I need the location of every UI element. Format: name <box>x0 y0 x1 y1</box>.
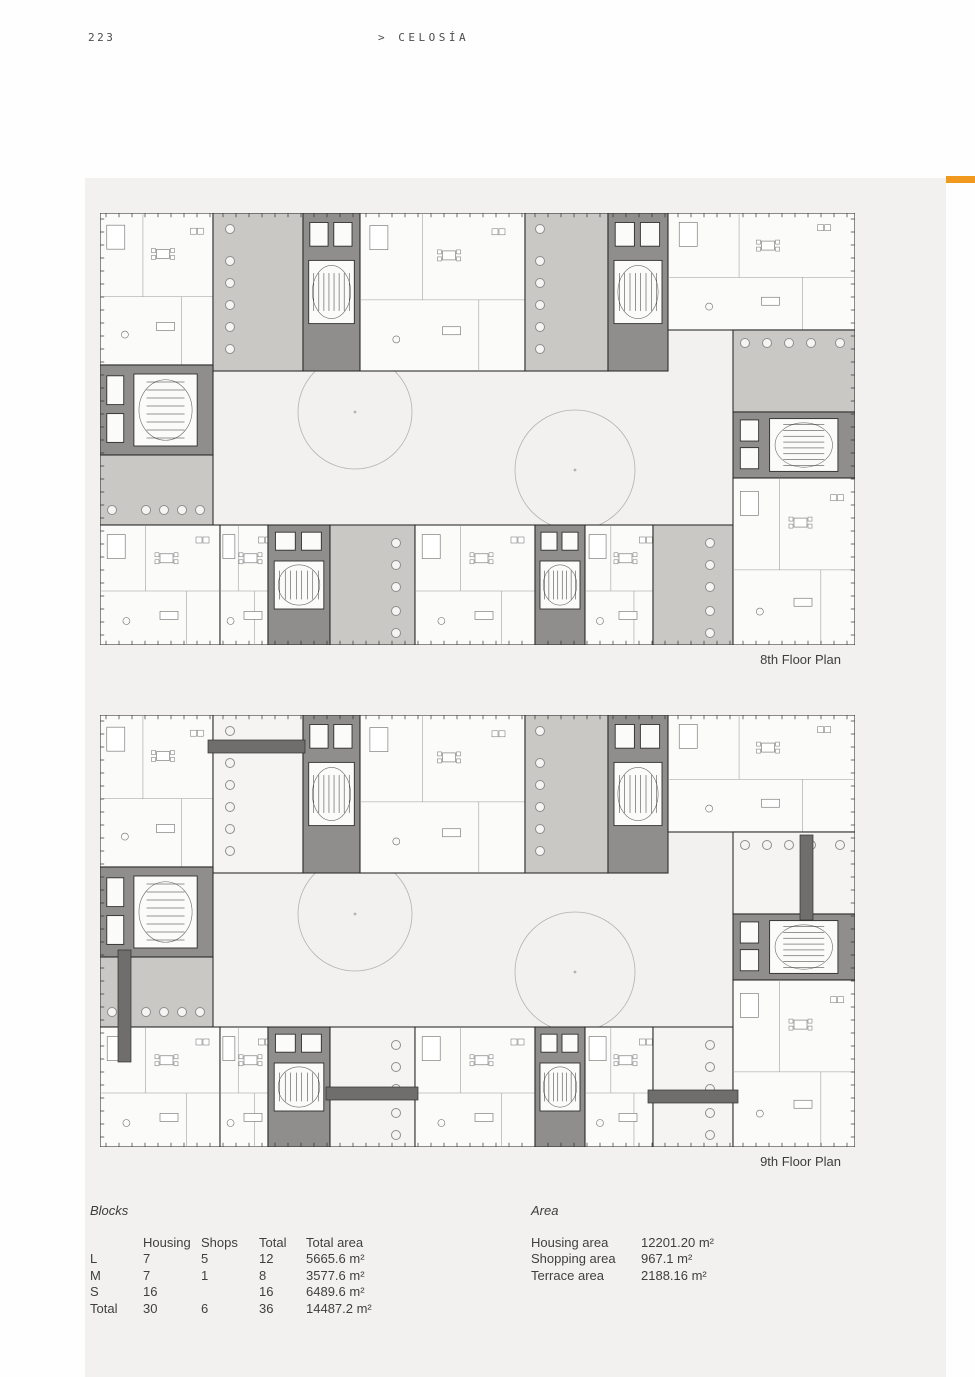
area-table: Area Housing area12201.20 m²Shopping are… <box>531 1203 714 1284</box>
blocks-table-cell: 8 <box>259 1268 306 1284</box>
blocks-table-header-cell: Shops <box>201 1235 259 1251</box>
area-table-title: Area <box>531 1203 714 1218</box>
page-number: 223 <box>88 31 115 44</box>
blocks-table-cell: 30 <box>143 1301 201 1317</box>
blocks-table-cell: L <box>90 1251 143 1267</box>
blocks-table-header-cell <box>90 1235 143 1251</box>
blocks-table-cell: 16 <box>259 1284 306 1300</box>
blocks-table-cell <box>201 1284 259 1300</box>
blocks-table-cell: 16 <box>143 1284 201 1300</box>
blocks-table-cell: 7 <box>143 1251 201 1267</box>
blocks-table-header-cell: Total area <box>306 1235 372 1251</box>
floor-plan-8-label: 8th Floor Plan <box>541 652 841 667</box>
floor-plan-9-label: 9th Floor Plan <box>541 1154 841 1169</box>
area-table-label: Terrace area <box>531 1268 641 1284</box>
blocks-table: Blocks HousingShopsTotalTotal areaL75125… <box>90 1203 372 1317</box>
area-table-label: Housing area <box>531 1235 641 1251</box>
accent-bar <box>946 176 975 183</box>
area-table-value: 12201.20 m² <box>641 1235 714 1251</box>
blocks-table-header-cell: Total <box>259 1235 306 1251</box>
blocks-table-cell: 6489.6 m² <box>306 1284 372 1300</box>
blocks-table-cell: M <box>90 1268 143 1284</box>
chapter-title: > CELOSÍA <box>378 31 469 44</box>
blocks-table-grid: HousingShopsTotalTotal areaL75125665.6 m… <box>90 1235 372 1317</box>
blocks-table-header-cell: Housing <box>143 1235 201 1251</box>
blocks-table-cell: S <box>90 1284 143 1300</box>
blocks-table-cell: 36 <box>259 1301 306 1317</box>
blocks-table-cell: 7 <box>143 1268 201 1284</box>
blocks-table-cell: 14487.2 m² <box>306 1301 372 1317</box>
area-table-grid: Housing area12201.20 m²Shopping area967.… <box>531 1235 714 1284</box>
blocks-table-cell: 3577.6 m² <box>306 1268 372 1284</box>
blocks-table-cell: 5 <box>201 1251 259 1267</box>
floor-plan-8 <box>100 213 855 645</box>
blocks-table-title: Blocks <box>90 1203 372 1218</box>
blocks-table-cell: 1 <box>201 1268 259 1284</box>
blocks-table-cell: 5665.6 m² <box>306 1251 372 1267</box>
blocks-table-cell: 6 <box>201 1301 259 1317</box>
area-table-label: Shopping area <box>531 1251 641 1267</box>
area-table-value: 967.1 m² <box>641 1251 714 1267</box>
blocks-table-cell: 12 <box>259 1251 306 1267</box>
blocks-table-cell: Total <box>90 1301 143 1317</box>
area-table-value: 2188.16 m² <box>641 1268 714 1284</box>
floor-plan-9 <box>100 715 855 1147</box>
